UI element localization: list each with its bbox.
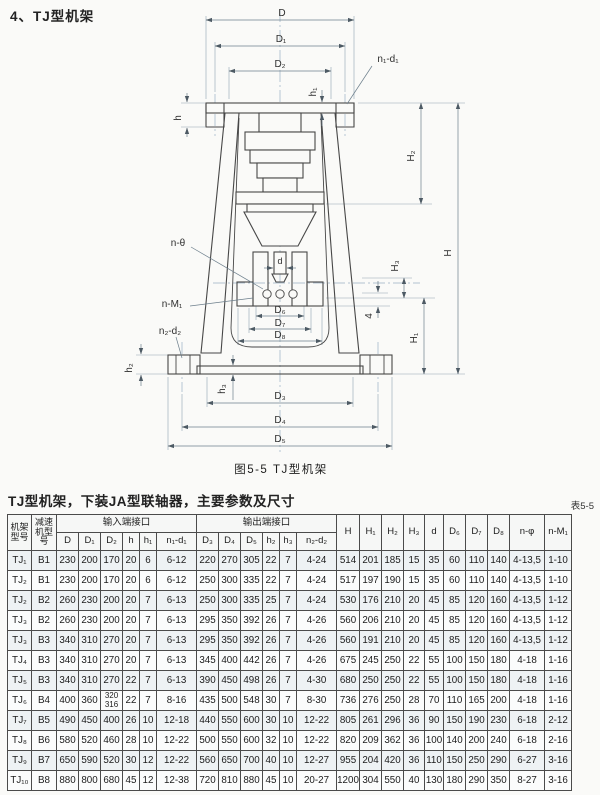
dim-label-4: 4	[364, 313, 375, 319]
table-cell: 26	[263, 671, 280, 691]
table-cell: 680	[337, 671, 360, 691]
table-cell: 675	[337, 651, 360, 671]
header-H1: H₁	[360, 515, 382, 551]
table-cell: TJ₆	[8, 691, 32, 711]
table-cell: 340	[57, 631, 79, 651]
table-cell: 12-22	[157, 751, 197, 771]
table-cell: 165	[466, 691, 488, 711]
table-cell: 360	[79, 691, 101, 711]
table-cell: 185	[382, 551, 404, 571]
table-cell: 1-16	[545, 671, 572, 691]
dim-label-n2-d2: n₂-d₂	[159, 326, 181, 337]
table-cell: 880	[241, 771, 263, 791]
table-cell: 150	[444, 751, 466, 771]
table-cell: 420	[382, 751, 404, 771]
table-cell: B3	[32, 631, 57, 651]
dim-label-H: H	[443, 249, 454, 256]
table-cell: 276	[360, 691, 382, 711]
header-D8: D₈	[488, 515, 510, 551]
table-cell: 120	[466, 631, 488, 651]
table-cell: TJ₄	[8, 651, 32, 671]
table-cell: 6	[140, 571, 157, 591]
table-cell: 7	[140, 591, 157, 611]
header-D3: D₃	[197, 533, 219, 551]
scanned-manual-page: 4、TJ型机架	[0, 0, 600, 795]
table-cell: 580	[57, 731, 79, 751]
table-title: TJ型机架，下装JA型联轴器，主要参数及尺寸	[8, 490, 295, 510]
dim-label-h1: h₁	[308, 87, 319, 97]
table-cell: 3-16	[545, 751, 572, 771]
table-cell: 300	[219, 571, 241, 591]
header-n1-d1: n₁-d₁	[157, 533, 197, 551]
table-row: TJ₃B33403102702076-132953503922674-26560…	[8, 631, 572, 651]
table-cell: 7	[280, 611, 297, 631]
table-cell: 12-18	[157, 711, 197, 731]
table-cell: B8	[32, 771, 57, 791]
table-cell: 6-13	[157, 591, 197, 611]
table-cell: 250	[466, 751, 488, 771]
table-cell: 6-18	[510, 731, 545, 751]
table-cell: 296	[382, 711, 404, 731]
table-cell: 26	[263, 631, 280, 651]
table-cell: 12-38	[157, 771, 197, 791]
table-row: TJ₈B6580520460281012-22500550600321012-2…	[8, 731, 572, 751]
header-H: H	[337, 515, 360, 551]
table-cell: 362	[382, 731, 404, 751]
table-cell: 350	[219, 611, 241, 631]
header-group-output: 输出端接口	[197, 515, 337, 533]
table-cell: 10	[140, 711, 157, 731]
table-cell: 514	[337, 551, 360, 571]
table-cell: 260	[57, 591, 79, 611]
table-cell: 230	[488, 711, 510, 731]
table-cell: 560	[337, 631, 360, 651]
table-cell: 200	[101, 611, 123, 631]
dim-label-D1: D₁	[276, 34, 287, 45]
table-cell: 220	[197, 551, 219, 571]
table-cell: 450	[219, 671, 241, 691]
table-cell: 110	[425, 751, 444, 771]
table-cell: 270	[101, 631, 123, 651]
table-cell: B3	[32, 651, 57, 671]
table-cell: 1-16	[545, 651, 572, 671]
dim-label-n-theta: n-θ	[171, 238, 186, 249]
table-cell: 20	[123, 611, 140, 631]
table-cell: 8-27	[510, 771, 545, 791]
table-cell: 15	[404, 571, 425, 591]
table-cell: 45	[123, 771, 140, 791]
table-cell: 20	[404, 611, 425, 631]
table-cell: 270	[219, 551, 241, 571]
table-cell: 170	[101, 571, 123, 591]
table-cell: 1200	[337, 771, 360, 791]
table-cell: 36	[404, 711, 425, 731]
table-cell: 4-13,5	[510, 571, 545, 591]
table-cell: 517	[337, 571, 360, 591]
table-cell: 100	[425, 731, 444, 751]
table-cell: 548	[241, 691, 263, 711]
dim-label-H2: H₂	[406, 150, 417, 161]
table-cell: 45	[425, 611, 444, 631]
table-cell: 200	[79, 571, 101, 591]
table-cell: 7	[140, 631, 157, 651]
header-D1: D₁	[79, 533, 101, 551]
header-h: h	[123, 533, 140, 551]
table-cell: 6-13	[157, 631, 197, 651]
table-cell: 4-26	[297, 651, 337, 671]
table-cell: 500	[219, 691, 241, 711]
table-cell: 200	[79, 551, 101, 571]
table-cell: 176	[360, 591, 382, 611]
table-cell: 4-24	[297, 591, 337, 611]
table-cell: 22	[263, 571, 280, 591]
table-cell: 26	[263, 611, 280, 631]
table-cell: 335	[241, 571, 263, 591]
table-cell: 295	[197, 631, 219, 651]
table-cell: 32	[263, 731, 280, 751]
dim-label-D3: D₃	[274, 391, 285, 402]
table-cell: TJ₁	[8, 551, 32, 571]
table-cell: TJ₉	[8, 751, 32, 771]
table-cell: 230	[57, 571, 79, 591]
header-D7: D₇	[466, 515, 488, 551]
table-cell: 22	[123, 671, 140, 691]
table-cell: 250	[197, 591, 219, 611]
table-cell: 26	[123, 711, 140, 731]
header-H3: H₃	[404, 515, 425, 551]
table-row: TJ₇B5490450400261012-18440550600301012-2…	[8, 711, 572, 731]
table-cell: 55	[425, 651, 444, 671]
table-cell: 1-16	[545, 691, 572, 711]
table-cell: 180	[488, 671, 510, 691]
table-cell: 736	[337, 691, 360, 711]
table-cell: 7	[140, 691, 157, 711]
table-cell: 200	[466, 731, 488, 751]
table-cell: 490	[57, 711, 79, 731]
table-cell: 22	[263, 551, 280, 571]
table-title-row: TJ型机架，下装JA型联轴器，主要参数及尺寸 表5-5	[8, 490, 594, 511]
header-D5: D₅	[241, 533, 263, 551]
table-cell: 3-16	[545, 771, 572, 791]
header-D6: D₆	[444, 515, 466, 551]
table-cell: TJ₁₀	[8, 771, 32, 791]
table-cell: 12-22	[297, 731, 337, 751]
header-n2-d2: n₂-d₂	[297, 533, 337, 551]
table-cell: 4-24	[297, 571, 337, 591]
table-cell: 12-27	[297, 751, 337, 771]
table-cell: 7	[280, 651, 297, 671]
table-cell: 140	[444, 731, 466, 751]
table-cell: 140	[488, 571, 510, 591]
table-cell: 310	[79, 631, 101, 651]
table-cell: 2-12	[545, 711, 572, 731]
table-cell: 7	[280, 591, 297, 611]
table-cell: 7	[280, 691, 297, 711]
table-cell: 12-22	[297, 711, 337, 731]
header-h3: h₃	[280, 533, 297, 551]
table-cell: 200	[101, 591, 123, 611]
table-cell: 650	[219, 751, 241, 771]
table-cell: 720	[197, 771, 219, 791]
table-cell: 191	[360, 631, 382, 651]
table-cell: 560	[337, 611, 360, 631]
table-cell: 6-13	[157, 671, 197, 691]
table-cell: 10	[280, 771, 297, 791]
table-cell: 700	[241, 751, 263, 771]
table-cell: 12	[140, 751, 157, 771]
dim-label-D4: D₄	[274, 415, 285, 426]
table-cell: 4-24	[297, 551, 337, 571]
table-cell: 55	[425, 671, 444, 691]
table-cell: 7	[280, 551, 297, 571]
table-cell: 500	[197, 731, 219, 751]
table-cell: TJ₇	[8, 711, 32, 731]
table-cell: 6-12	[157, 551, 197, 571]
header-reducer-model: 减速 机型 号	[32, 515, 57, 551]
table-cell: 45	[263, 771, 280, 791]
table-cell: 340	[57, 671, 79, 691]
table-cell: 1-12	[545, 611, 572, 631]
table-cell: B2	[32, 591, 57, 611]
table-cell: 6-27	[510, 751, 545, 771]
table-cell: 22	[123, 691, 140, 711]
table-cell: 130	[425, 771, 444, 791]
table-cell: 7	[140, 611, 157, 631]
table-row: TJ₃B22602302002076-132953503922674-26560…	[8, 611, 572, 631]
table-cell: 4-26	[297, 611, 337, 631]
table-cell: 10	[280, 751, 297, 771]
table-cell: 335	[241, 591, 263, 611]
table-cell: B5	[32, 711, 57, 731]
table-cell: 4-26	[297, 631, 337, 651]
table-cell: 8-30	[297, 691, 337, 711]
table-cell: 210	[382, 611, 404, 631]
table-row: TJ₂B22602302002076-132503003352574-24530…	[8, 591, 572, 611]
dim-label-n-M1: n-M₁	[162, 299, 183, 310]
table-cell: 270	[101, 651, 123, 671]
table-cell: 680	[101, 771, 123, 791]
table-cell: 4-13,5	[510, 591, 545, 611]
table-cell: 392	[241, 631, 263, 651]
table-cell: 805	[337, 711, 360, 731]
table-cell: 450	[79, 711, 101, 731]
table-cell: 85	[444, 631, 466, 651]
table-cell: 1-12	[545, 631, 572, 651]
table-cell: 160	[488, 631, 510, 651]
table-cell: 100	[444, 671, 466, 691]
table-cell: 345	[197, 651, 219, 671]
dim-label-D: D	[278, 8, 285, 19]
header-frame-model: 机架 型号	[8, 515, 32, 551]
table-cell: 70	[425, 691, 444, 711]
table-cell: 290	[488, 751, 510, 771]
table-cell: 4-13,5	[510, 611, 545, 631]
table-cell: 209	[360, 731, 382, 751]
table-cell: 230	[57, 551, 79, 571]
table-cell: 150	[466, 671, 488, 691]
table-cell: 590	[79, 751, 101, 771]
table-cell: 26	[263, 651, 280, 671]
table-cell: 180	[488, 651, 510, 671]
dim-label-H3: H₃	[390, 260, 401, 271]
table-cell: 201	[360, 551, 382, 571]
table-cell: 197	[360, 571, 382, 591]
table-cell: 45	[425, 591, 444, 611]
dim-label-D6: D₆	[274, 305, 285, 316]
dim-label-D5: D₅	[274, 434, 285, 445]
table-cell: 6-13	[157, 611, 197, 631]
table-cell: 35	[425, 551, 444, 571]
table-cell: 30	[123, 751, 140, 771]
table-cell: 440	[197, 711, 219, 731]
table-cell: 290	[466, 771, 488, 791]
table-cell: 250	[382, 691, 404, 711]
table-cell: 245	[360, 651, 382, 671]
dim-label-D7: D₇	[275, 318, 286, 329]
table-cell: 20-27	[297, 771, 337, 791]
table-cell: 100	[444, 651, 466, 671]
table-cell: 22	[404, 671, 425, 691]
table-cell: 392	[241, 611, 263, 631]
table-cell: 260	[57, 611, 79, 631]
table-cell: 120	[466, 591, 488, 611]
table-cell: 230	[79, 591, 101, 611]
table-cell: 10	[280, 711, 297, 731]
header-d: d	[425, 515, 444, 551]
table-cell: TJ₅	[8, 671, 32, 691]
table-cell: 250	[382, 671, 404, 691]
dim-label-h2: h₂	[124, 363, 135, 373]
table-cell: 206	[360, 611, 382, 631]
table-cell: 210	[382, 631, 404, 651]
table-cell: 20	[404, 591, 425, 611]
dim-label-D8: D₈	[274, 330, 285, 341]
table-cell: 400	[57, 691, 79, 711]
table-cell: 350	[219, 631, 241, 651]
table-cell: 160	[488, 591, 510, 611]
table-cell: 250	[360, 671, 382, 691]
table-cell: 442	[241, 651, 263, 671]
table-cell: 600	[241, 711, 263, 731]
table-cell: 304	[360, 771, 382, 791]
header-h2: h₂	[263, 533, 280, 551]
table-cell: 150	[466, 651, 488, 671]
table-cell: 230	[79, 611, 101, 631]
table-cell: 20	[123, 571, 140, 591]
table-cell: 30	[263, 711, 280, 731]
table-cell: 305	[241, 551, 263, 571]
table-cell: B4	[32, 691, 57, 711]
table-cell: 35	[425, 571, 444, 591]
table-cell: 15	[404, 551, 425, 571]
table-cell: 25	[263, 591, 280, 611]
table-row: TJ₅B33403102702276-133904504982674-30680…	[8, 671, 572, 691]
table-cell: TJ₈	[8, 731, 32, 751]
table-cell: 320 316	[101, 691, 123, 711]
table-cell: 1-10	[545, 571, 572, 591]
table-cell: 90	[425, 711, 444, 731]
table-cell: 7	[280, 631, 297, 651]
header-D4: D₄	[219, 533, 241, 551]
table-cell: 520	[79, 731, 101, 751]
table-row: TJ₉B7650590520301212-22560650700401012-2…	[8, 751, 572, 771]
table-cell: 4-18	[510, 651, 545, 671]
table-cell: TJ₂	[8, 571, 32, 591]
table-cell: 20	[123, 591, 140, 611]
table-cell: 40	[404, 771, 425, 791]
table-cell: 4-18	[510, 691, 545, 711]
table-cell: 270	[101, 671, 123, 691]
table-cell: 110	[444, 691, 466, 711]
table-row: TJ₁₀B8880800680451212-38720810880451020-…	[8, 771, 572, 791]
table-cell: 7	[140, 671, 157, 691]
table-cell: 190	[466, 711, 488, 731]
table-cell: B6	[32, 731, 57, 751]
table-cell: 85	[444, 591, 466, 611]
table-cell: B3	[32, 671, 57, 691]
table-row: TJ₄B33403102702076-133454004422674-26675…	[8, 651, 572, 671]
table-cell: 300	[219, 591, 241, 611]
table-cell: 160	[488, 611, 510, 631]
table-cell: 550	[219, 731, 241, 751]
table-cell: 36	[404, 751, 425, 771]
table-row: TJ₁B12302001702066-122202703052274-24514…	[8, 551, 572, 571]
table-cell: 110	[466, 571, 488, 591]
table-cell: 200	[488, 691, 510, 711]
table-cell: 400	[101, 711, 123, 731]
table-row: TJ₂B12302001702066-122503003352274-24517…	[8, 571, 572, 591]
dim-label-n1-d1: n₁-d₁	[377, 54, 399, 65]
table-cell: 2-16	[545, 731, 572, 751]
table-cell: 28	[404, 691, 425, 711]
table-cell: 600	[241, 731, 263, 751]
table-cell: 140	[488, 551, 510, 571]
dim-label-D2: D₂	[274, 59, 285, 70]
table-cell: 20	[404, 631, 425, 651]
table-cell: 650	[57, 751, 79, 771]
table-cell: 6-13	[157, 651, 197, 671]
header-h1: h₁	[140, 533, 157, 551]
table-cell: 36	[404, 731, 425, 751]
table-cell: 520	[101, 751, 123, 771]
table-cell: 800	[79, 771, 101, 791]
table-cell: 820	[337, 731, 360, 751]
table-cell: 85	[444, 611, 466, 631]
table-cell: 20	[123, 651, 140, 671]
table-cell: 6-18	[510, 711, 545, 731]
dim-label-h3: h₃	[217, 384, 228, 394]
table-cell: 350	[488, 771, 510, 791]
parameters-table: 机架 型号 减速 机型 号 输入端接口 输出端接口 H H₁ H₂ H₃ d D…	[7, 514, 572, 791]
table-cell: 550	[382, 771, 404, 791]
table-cell: 180	[444, 771, 466, 791]
table-cell: TJ₂	[8, 591, 32, 611]
table-cell: 1-12	[545, 591, 572, 611]
table-cell: B2	[32, 611, 57, 631]
table-cell: 7	[140, 651, 157, 671]
table-cell: 4-18	[510, 671, 545, 691]
table-cell: 310	[79, 671, 101, 691]
dim-label-d: d	[277, 256, 282, 266]
tj-frame-diagram: D D₁ D₂ n₁-d₁ h₁ h H₂ H n-θ d H₃ n-M₁ 4 …	[0, 0, 600, 480]
table-cell: 12-22	[157, 731, 197, 751]
table-cell: TJ₃	[8, 611, 32, 631]
table-cell: 8-16	[157, 691, 197, 711]
table-cell: 1-10	[545, 551, 572, 571]
figure-caption: 图5-5 TJ型机架	[0, 461, 562, 477]
table-cell: 530	[337, 591, 360, 611]
table-cell: 120	[466, 611, 488, 631]
